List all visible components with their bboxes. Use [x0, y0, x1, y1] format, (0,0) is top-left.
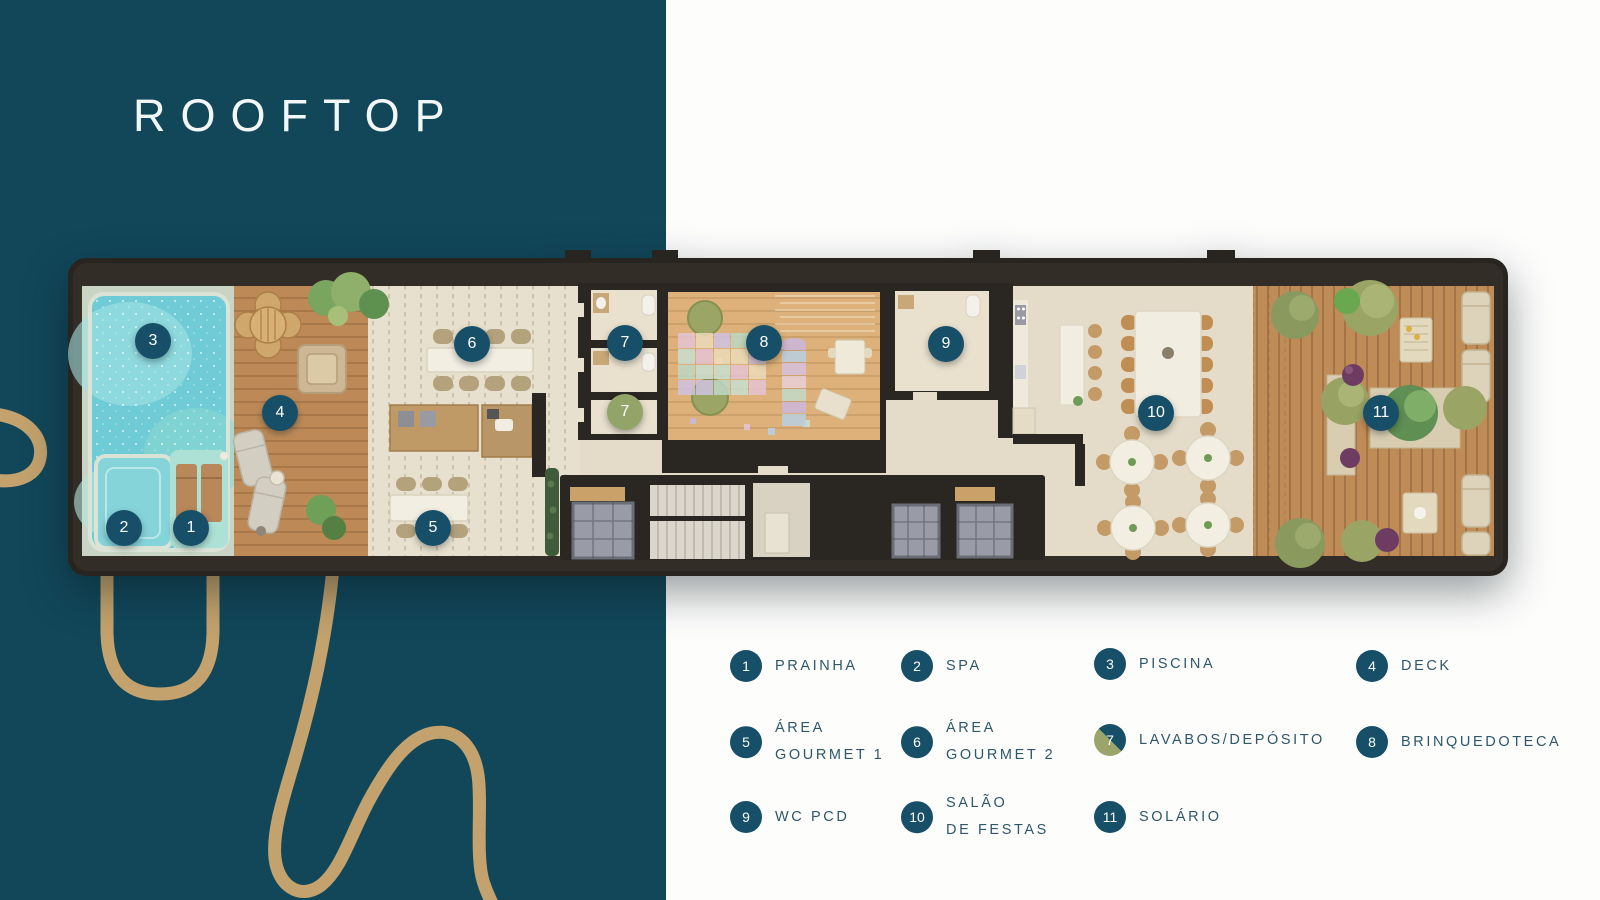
playmat-cell [749, 365, 766, 380]
legend-number: 5 [730, 726, 762, 758]
legend-number: 4 [1356, 650, 1388, 682]
legend-number: 7 [1094, 724, 1126, 756]
playmat-cell [714, 333, 731, 348]
legend-item-11: 11SOLÁRIO [1094, 801, 1222, 833]
playmat-cell [731, 349, 748, 364]
playmat-cell [731, 365, 748, 380]
legend-item-8: 8BRINQUEDOTECA [1356, 726, 1561, 758]
legend-item-6: 6ÁREA GOURMET 2 [901, 715, 1055, 769]
legend-number: 10 [901, 801, 933, 833]
legend-number: 9 [730, 801, 762, 833]
plan-marker-11: 11 [1363, 395, 1399, 431]
legend-label: WC PCD [775, 804, 849, 831]
playmat-cell [714, 349, 731, 364]
playmat-cell [678, 333, 695, 348]
plan-marker-7: 7 [607, 394, 643, 430]
legend-item-2: 2SPA [901, 650, 982, 682]
side-table [270, 471, 284, 485]
legend-number: 11 [1094, 801, 1126, 833]
legend-label: SPA [946, 653, 982, 680]
legend-number: 1 [730, 650, 762, 682]
stairs [650, 485, 745, 559]
plan-marker-10: 10 [1138, 395, 1174, 431]
deck-area [232, 286, 368, 556]
hopscotch-cell [782, 414, 806, 426]
legend-label: PRAINHA [775, 653, 858, 680]
legend-item-1: 1PRAINHA [730, 650, 858, 682]
wave-arc [0, 414, 41, 481]
playmat-cell [678, 380, 695, 395]
legend-item-10: 10SALÃO DE FESTAS [901, 790, 1049, 844]
elevator [958, 505, 1012, 557]
hopscotch-cell [782, 402, 806, 414]
plan-marker-8: 8 [746, 325, 782, 361]
playmat-cell [731, 380, 748, 395]
page: ROOFTOP [0, 0, 1600, 900]
elevator [573, 503, 633, 558]
playmat-cell [696, 333, 713, 348]
legend-label: SALÃO DE FESTAS [946, 790, 1049, 844]
floor-lamp [256, 526, 266, 536]
plan-marker-7: 7 [607, 325, 643, 361]
legend-label: ÁREA GOURMET 2 [946, 715, 1055, 769]
plan-marker-4: 4 [262, 395, 298, 431]
plan-marker-3: 3 [135, 323, 171, 359]
pouf [688, 301, 722, 335]
legend-item-7: 7LAVABOS/DEPÓSITO [1094, 724, 1325, 756]
legend-number: 6 [901, 726, 933, 758]
playmat-cell [714, 365, 731, 380]
wave-serpentine [275, 568, 494, 900]
playmat-cell [696, 380, 713, 395]
legend-item-4: 4DECK [1356, 650, 1452, 682]
wave-u [107, 568, 213, 694]
wicker-sofa [298, 345, 346, 393]
plan-marker-9: 9 [928, 326, 964, 362]
legend-label: PISCINA [1139, 651, 1215, 678]
legend-label: ÁREA GOURMET 1 [775, 715, 884, 769]
core-block [560, 475, 1045, 560]
playmat-cell [714, 380, 731, 395]
playmat-cell [678, 349, 695, 364]
legend-number: 8 [1356, 726, 1388, 758]
plan-marker-2: 2 [106, 510, 142, 546]
legend-label: LAVABOS/DEPÓSITO [1139, 727, 1325, 754]
playmat-cell [696, 365, 713, 380]
legend-label: DECK [1401, 653, 1452, 680]
hopscotch-cell [782, 389, 806, 401]
hopscotch-cell [782, 376, 806, 388]
hopscotch-mat [782, 338, 806, 426]
legend-label: BRINQUEDOTECA [1401, 729, 1561, 756]
legend-item-3: 3PISCINA [1094, 648, 1215, 680]
hopscotch-cell [782, 338, 806, 350]
legend-item-5: 5ÁREA GOURMET 1 [730, 715, 884, 769]
elevator [893, 505, 939, 557]
playmat-cell [696, 349, 713, 364]
page-title: ROOFTOP [133, 90, 460, 142]
floor-plan: 12345677891011 [68, 258, 1508, 576]
playmat-cell [749, 380, 766, 395]
hedge [545, 468, 559, 556]
legend-number: 3 [1094, 648, 1126, 680]
plan-marker-5: 5 [415, 510, 451, 546]
plan-marker-6: 6 [454, 326, 490, 362]
hopscotch-cell [782, 351, 806, 363]
legend-label: SOLÁRIO [1139, 804, 1222, 831]
kids-table [835, 340, 865, 374]
plan-marker-1: 1 [173, 510, 209, 546]
legend-number: 2 [901, 650, 933, 682]
playmat-cell [678, 365, 695, 380]
hopscotch-cell [782, 363, 806, 375]
legend-item-9: 9WC PCD [730, 801, 849, 833]
